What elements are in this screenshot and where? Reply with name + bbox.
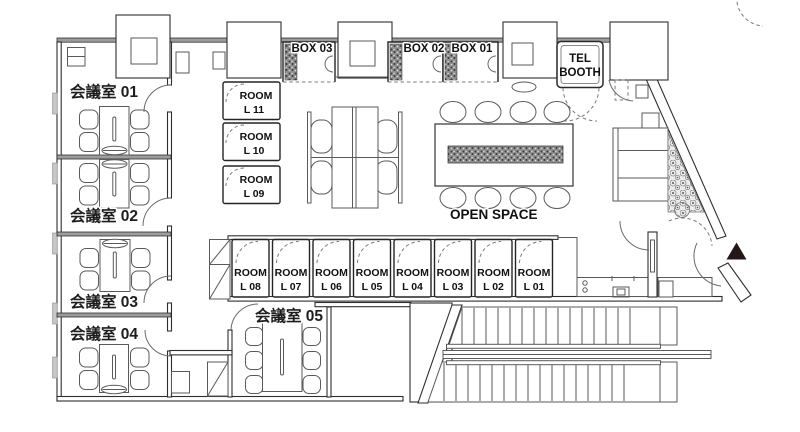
plant-icon — [675, 203, 690, 218]
bench-seat — [613, 128, 668, 201]
room-l08-code: L 08 — [240, 281, 261, 293]
room-l07: ROOM L 07 — [273, 240, 310, 298]
meeting-room-05-label: 会議室 05 — [255, 306, 323, 325]
floor-plan-drawing: BOX 03 BOX 02 BOX 01 TEL BOOTH — [0, 0, 800, 432]
wall-details-top-right — [609, 80, 648, 101]
room-l05-name: ROOM — [356, 267, 389, 279]
shaft-boxes — [172, 240, 231, 397]
meeting-room-02-label: 会議室 02 — [70, 206, 138, 225]
door-arc — [144, 85, 171, 112]
room-l08: ROOM L 08 — [232, 240, 269, 298]
room-l06-code: L 06 — [321, 281, 342, 293]
meeting-room-03-label: 会議室 03 — [70, 292, 138, 311]
angled-wall-lower — [718, 263, 751, 302]
door-swing-dashed — [737, 2, 763, 26]
door-swing-dashed — [669, 218, 712, 246]
room-l10: ROOM L 10 — [223, 123, 280, 161]
meeting-room-04-label: 会議室 04 — [70, 324, 138, 343]
box-03-label: BOX 03 — [292, 43, 333, 55]
cabinet — [68, 48, 86, 67]
open-space-label: OPEN SPACE — [450, 207, 538, 222]
room-l07-code: L 07 — [281, 281, 302, 293]
room-l04-code: L 04 — [402, 281, 423, 293]
room-l06: ROOM L 06 — [313, 240, 350, 298]
room-l07-name: ROOM — [275, 267, 308, 279]
workstation-cluster — [308, 107, 403, 208]
room-l01: ROOM L 01 — [516, 240, 553, 298]
room-l02-code: L 02 — [483, 281, 504, 293]
room-l03-code: L 03 — [443, 281, 464, 293]
box-01-label: BOX 01 — [452, 43, 494, 55]
room-l10-code: L 10 — [244, 145, 265, 157]
room-l02-name: ROOM — [477, 267, 510, 279]
door-arc — [620, 221, 649, 250]
entry-wall — [648, 232, 657, 297]
door-swing-dashed — [565, 88, 599, 121]
room-l03-name: ROOM — [437, 267, 470, 279]
floor-plan: BOX 03 BOX 02 BOX 01 TEL BOOTH — [0, 0, 800, 432]
room-l11-code: L 11 — [244, 104, 264, 116]
room-l09: ROOM L 09 — [223, 166, 280, 204]
door-arc — [231, 304, 258, 331]
room-l05-code: L 05 — [362, 281, 383, 293]
room-l09-code: L 09 — [244, 188, 265, 200]
room-l04: ROOM L 04 — [394, 240, 431, 298]
meeting-room-01-label: 会議室 01 — [70, 82, 138, 101]
room-l11: ROOM L 11 — [223, 82, 280, 120]
room-l08-name: ROOM — [234, 267, 267, 279]
stairs — [410, 303, 711, 403]
tel-booth-label-line1: TEL — [569, 53, 591, 65]
room-l10-name: ROOM — [240, 131, 273, 143]
table-planter-strip — [448, 146, 563, 163]
room-l05: ROOM L 05 — [354, 240, 391, 298]
room-l02: ROOM L 02 — [475, 240, 512, 298]
room-l06-name: ROOM — [315, 267, 348, 279]
room-l04-name: ROOM — [396, 267, 429, 279]
room-l03: ROOM L 03 — [435, 240, 472, 298]
room-l01-code: L 01 — [524, 281, 545, 293]
room-l01-name: ROOM — [518, 267, 551, 279]
entrance-marker-icon — [727, 243, 747, 260]
open-space: OPEN SPACE — [435, 102, 573, 223]
room-l09-name: ROOM — [240, 174, 273, 186]
tel-booth-label-line2: BOOTH — [559, 67, 601, 79]
box-02-label: BOX 02 — [404, 43, 445, 55]
room-l11-name: ROOM — [240, 90, 273, 102]
rooms-row: ROOM L 08 ROOM L 07 ROOM L 06 ROOM L 05 … — [232, 240, 553, 298]
